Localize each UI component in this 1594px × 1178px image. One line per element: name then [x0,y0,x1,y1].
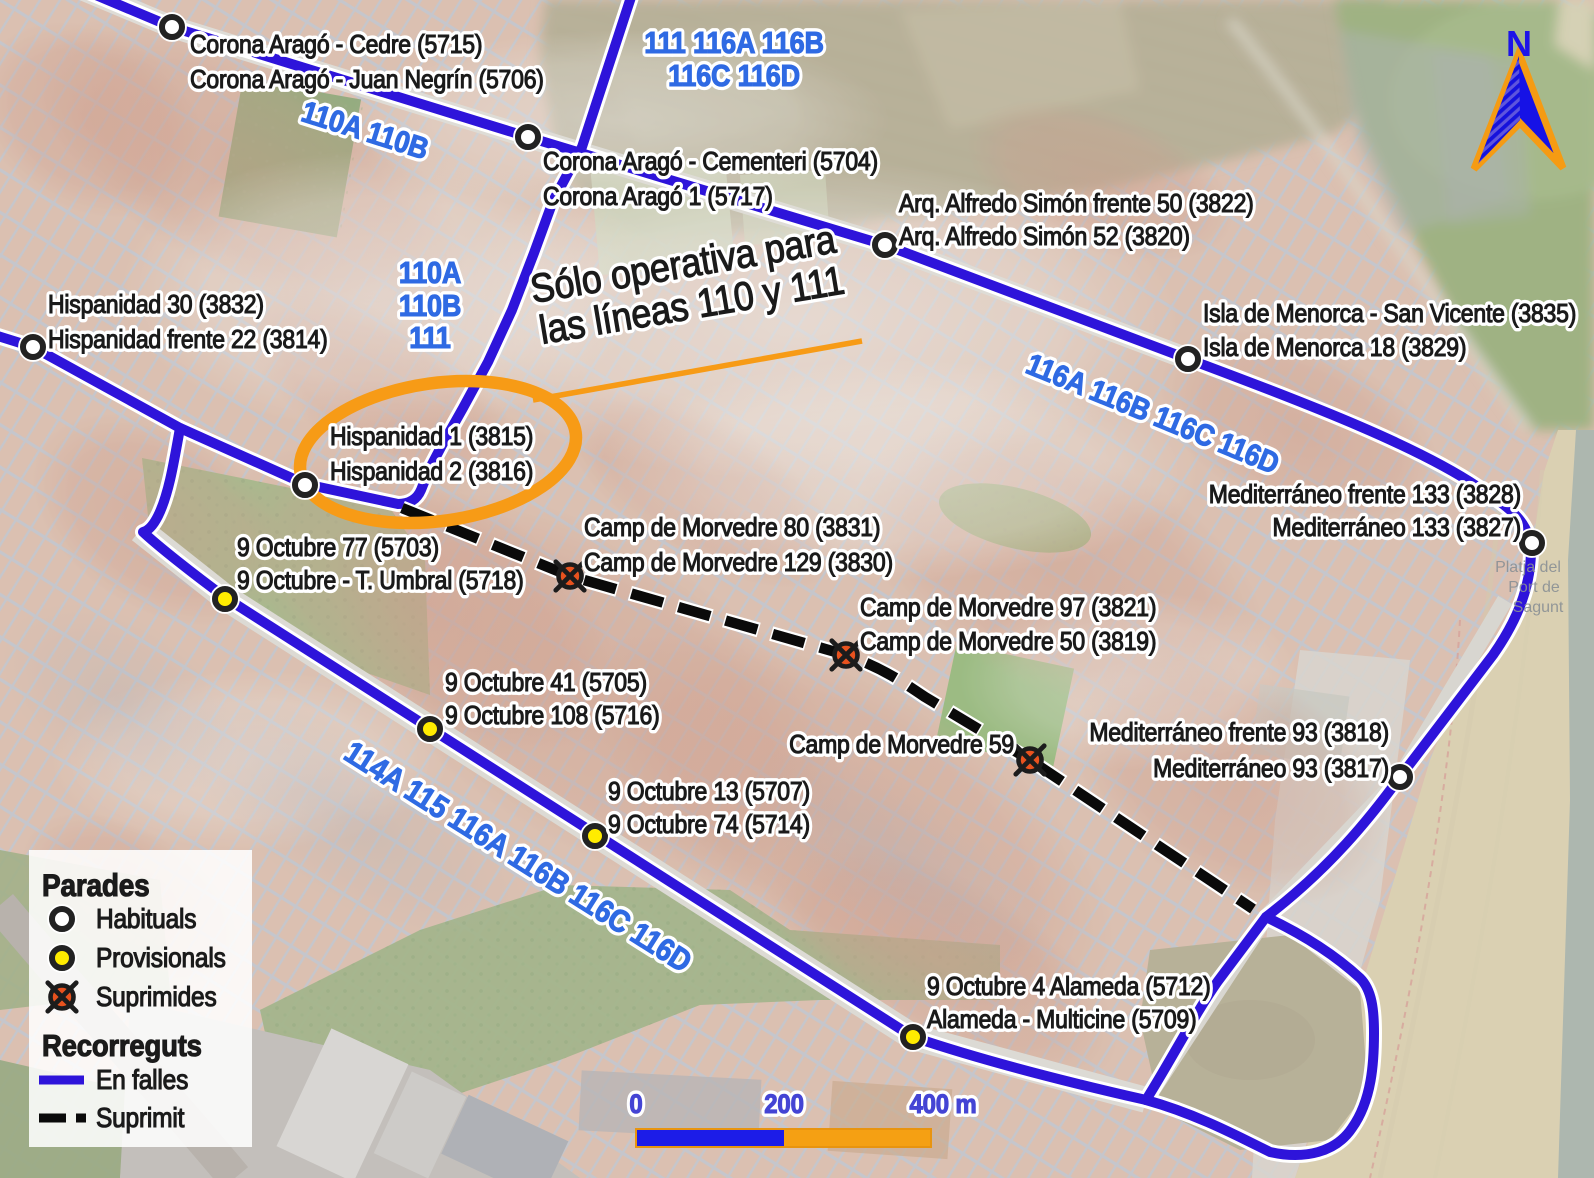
svg-text:Alameda - Multicine (5709): Alameda - Multicine (5709) [927,1006,1197,1034]
svg-text:400 m: 400 m [909,1090,976,1120]
svg-text:110A: 110A [399,257,461,291]
svg-text:111 116A 116B: 111 116A 116B [644,27,824,61]
svg-text:9 Octubre 74 (5714): 9 Octubre 74 (5714) [608,811,810,839]
svg-text:111: 111 [409,322,451,356]
svg-text:Mediterráneo 93 (3817): Mediterráneo 93 (3817) [1153,755,1389,783]
svg-text:Corona Aragó 1 (5717): Corona Aragó 1 (5717) [543,183,773,211]
svg-text:Suprimides: Suprimides [96,981,217,1013]
svg-text:Sagunt: Sagunt [1513,599,1564,616]
svg-text:110B: 110B [399,290,461,324]
svg-text:Suprimit: Suprimit [96,1102,185,1134]
svg-text:9 Octubre 108 (5716): 9 Octubre 108 (5716) [445,702,660,730]
svg-text:Recorreguts: Recorreguts [42,1030,202,1064]
svg-text:Corona Aragó - Cedre (5715): Corona Aragó - Cedre (5715) [190,31,482,59]
svg-text:0: 0 [629,1090,642,1120]
svg-text:9 Octubre 77 (5703): 9 Octubre 77 (5703) [237,534,439,562]
svg-text:Camp de Morvedre 59: Camp de Morvedre 59 [789,731,1014,759]
svg-text:Platja del: Platja del [1495,559,1561,576]
svg-text:Hispanidad 2 (3816): Hispanidad 2 (3816) [330,458,533,486]
svg-text:Camp de Morvedre 50 (3819): Camp de Morvedre 50 (3819) [860,628,1156,656]
svg-text:9 Octubre 41 (5705): 9 Octubre 41 (5705) [445,669,647,697]
svg-text:Parades: Parades [42,869,150,904]
svg-text:Provisionals: Provisionals [96,942,226,974]
svg-text:Mediterráneo 133 (3827): Mediterráneo 133 (3827) [1273,514,1521,542]
svg-text:Camp de Morvedre 80 (3831): Camp de Morvedre 80 (3831) [584,514,880,542]
svg-text:Hispanidad 30 (3832): Hispanidad 30 (3832) [48,291,264,319]
svg-text:Camp de Morvedre 129 (3830): Camp de Morvedre 129 (3830) [584,549,893,577]
svg-text:Port de: Port de [1508,579,1560,596]
svg-text:9 Octubre 13 (5707): 9 Octubre 13 (5707) [608,778,810,806]
svg-text:Mediterráneo frente 133 (3828): Mediterráneo frente 133 (3828) [1209,481,1521,509]
svg-text:Camp de Morvedre 97 (3821): Camp de Morvedre 97 (3821) [860,594,1156,622]
svg-text:Arq. Alfredo Simón frente 50 (: Arq. Alfredo Simón frente 50 (3822) [899,190,1254,218]
svg-text:Hispanidad frente 22 (3814): Hispanidad frente 22 (3814) [48,326,328,354]
svg-text:9 Octubre 4 Alameda (5712): 9 Octubre 4 Alameda (5712) [927,973,1211,1001]
svg-text:Isla de Menorca - San Vicente: Isla de Menorca - San Vicente (3835) [1203,300,1576,328]
svg-text:Mediterráneo frente 93 (3818): Mediterráneo frente 93 (3818) [1089,719,1389,747]
svg-text:Habituals: Habituals [96,903,196,935]
svg-text:En falles: En falles [96,1064,188,1096]
svg-text:Arq. Alfredo Simón 52 (3820): Arq. Alfredo Simón 52 (3820) [899,223,1190,251]
svg-text:116C 116D: 116C 116D [668,60,800,94]
svg-text:Corona Aragó - Juan Negrín (57: Corona Aragó - Juan Negrín (5706) [190,66,544,94]
svg-text:N: N [1506,23,1532,64]
svg-text:Isla de Menorca 18 (3829): Isla de Menorca 18 (3829) [1203,334,1466,362]
svg-text:Hispanidad 1 (3815): Hispanidad 1 (3815) [330,423,533,451]
svg-text:9 Octubre - T. Umbral (5718): 9 Octubre - T. Umbral (5718) [237,567,524,595]
svg-text:Corona Aragó - Cementeri (5704: Corona Aragó - Cementeri (5704) [543,148,878,176]
svg-text:200: 200 [764,1090,803,1120]
